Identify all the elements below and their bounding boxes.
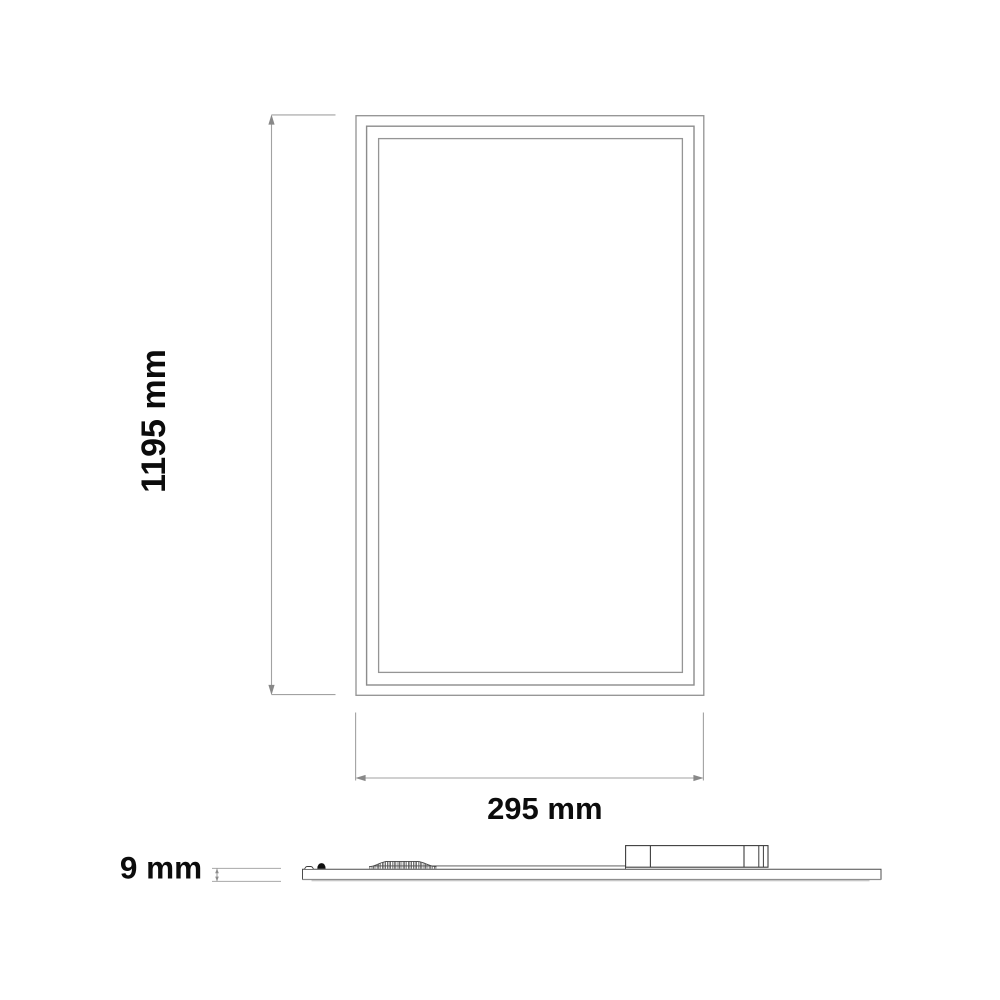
svg-text:9 mm: 9 mm (120, 850, 202, 886)
svg-text:295 mm: 295 mm (487, 791, 602, 826)
svg-text:1195 mm: 1195 mm (135, 349, 173, 493)
